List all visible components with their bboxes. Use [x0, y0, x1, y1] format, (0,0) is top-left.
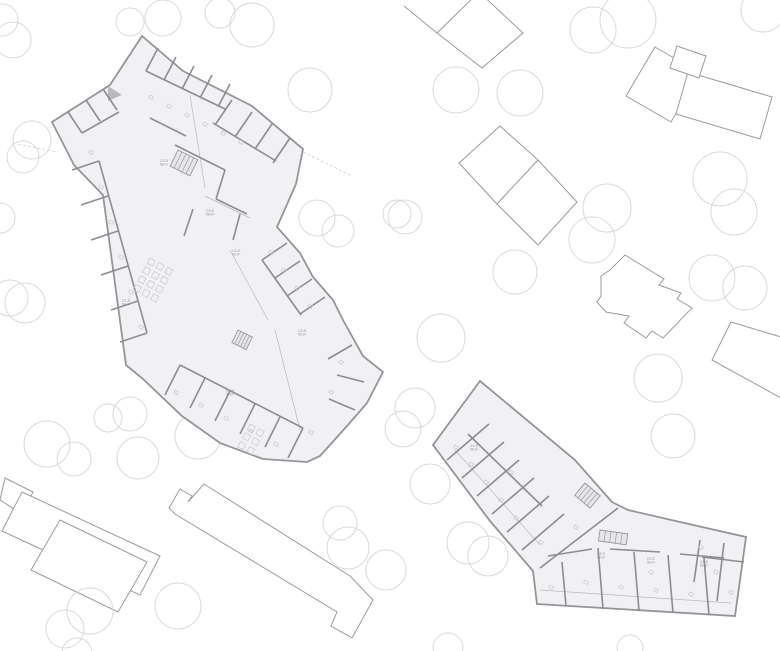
tree-canopy — [322, 215, 354, 247]
tree-canopy — [116, 8, 144, 36]
tree-canopy — [395, 388, 435, 428]
tree-canopy — [493, 250, 537, 294]
tree-canopy — [24, 421, 70, 467]
tree-canopy — [417, 314, 465, 362]
tree-canopy — [155, 583, 201, 629]
tree-canopy — [230, 3, 274, 47]
tree-canopy — [689, 255, 735, 301]
apartment-label: 1.5 Zi42 m² — [298, 329, 306, 336]
tree-canopy — [62, 638, 92, 651]
tree-canopy — [651, 414, 695, 458]
tree-canopy — [433, 633, 463, 651]
tree-canopy — [0, 22, 31, 58]
tree-canopy — [468, 536, 508, 576]
site-plan-canvas: 2.5 Zi58 m²2.5 Zi58 m²1.5 Zi42 m²2.5 Zi5… — [0, 0, 780, 651]
apartment-label: 2.5 Zi58 m² — [470, 444, 478, 451]
outbuilding-far-east-slab — [712, 322, 780, 398]
tree-canopy — [711, 189, 757, 235]
tree-canopy — [366, 550, 406, 590]
tree-canopy — [583, 184, 631, 232]
tree-canopy — [388, 200, 422, 234]
tree-canopy — [299, 200, 335, 236]
tree-canopy — [600, 0, 656, 48]
tree-canopy — [0, 4, 18, 36]
outbuilding-north-pavilion-b — [437, 0, 523, 68]
tree-canopy — [741, 0, 780, 32]
apartment-label: 1.5 Zi42 m² — [232, 249, 240, 256]
outbuilding-northeast-slab-b — [676, 72, 772, 139]
tree-canopy — [113, 397, 147, 431]
tree-canopy — [145, 0, 181, 36]
tree-canopy — [570, 7, 616, 53]
outbuilding-east-stepped-house — [597, 255, 692, 338]
tree-canopy — [383, 200, 411, 228]
tree-canopy — [433, 67, 479, 113]
tree-canopy — [57, 442, 91, 476]
tree-canopy — [0, 280, 28, 316]
site-plan-drawing: 2.5 Zi58 m²2.5 Zi58 m²1.5 Zi42 m²2.5 Zi5… — [0, 0, 780, 651]
tree-canopy — [323, 506, 357, 540]
apartment-label: 2.5 Zi58 m² — [647, 557, 655, 564]
tree-canopy — [327, 527, 369, 569]
tree-canopy — [288, 68, 332, 112]
apartment-label: 2.5 Zi58 m² — [160, 159, 168, 166]
tree-canopy — [5, 283, 45, 323]
tree-canopy — [723, 266, 767, 310]
apartment-label: 2.5 Zi58 m² — [226, 389, 234, 396]
tree-canopy — [617, 635, 643, 651]
apartment-label: 2.5 Zi58 m² — [206, 209, 214, 216]
tree-canopy — [693, 152, 747, 206]
floorplan-outline — [52, 36, 383, 462]
tree-canopy — [46, 610, 84, 648]
tree-canopy — [410, 464, 450, 504]
apartment-label: 3.5 Zi82 m² — [597, 552, 605, 559]
floorplan-building-b: 3.5 Zi82 m²2.5 Zi58 m²3.5 Zi82 m²2.5 Zi5… — [433, 381, 746, 616]
tree-canopy — [13, 121, 51, 159]
apartment-label: 2.5 Zi58 m² — [122, 299, 130, 306]
tree-canopy — [497, 70, 543, 116]
tree-canopy — [569, 217, 615, 263]
boundary-east — [303, 152, 352, 176]
tree-canopy — [0, 203, 15, 233]
floorplan-building-a: 2.5 Zi58 m²2.5 Zi58 m²1.5 Zi42 m²2.5 Zi5… — [52, 36, 383, 462]
tree-canopy — [634, 354, 682, 402]
tree-canopy — [385, 411, 421, 447]
apartment-label: 3.5 Zi82 m² — [700, 560, 708, 567]
tree-canopy — [94, 404, 122, 432]
tree-canopy — [117, 437, 159, 479]
